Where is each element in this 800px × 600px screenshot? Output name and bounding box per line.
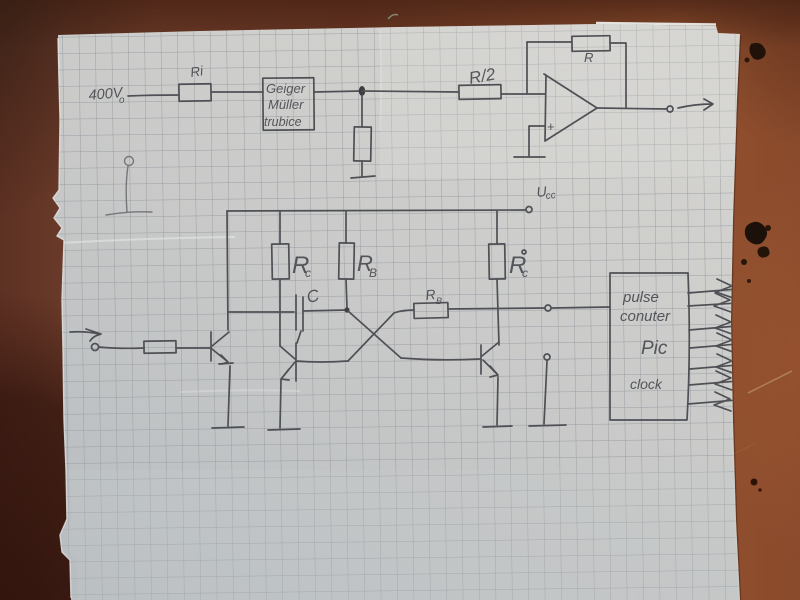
svg-text:c: c: [522, 266, 528, 280]
svg-text:conuter: conuter: [620, 308, 671, 325]
svg-text:cc: cc: [545, 190, 556, 202]
svg-text:Pic: Pic: [641, 338, 668, 359]
svg-text:Müller: Müller: [268, 97, 304, 112]
svg-text:R: R: [425, 286, 437, 303]
svg-text:clock: clock: [630, 376, 663, 392]
svg-text:trubice: trubice: [264, 115, 302, 129]
svg-text:+: +: [547, 119, 555, 134]
svg-text:o: o: [119, 95, 125, 106]
svg-text:c: c: [305, 266, 311, 280]
svg-text:pulse: pulse: [622, 289, 659, 306]
svg-text:Geiger: Geiger: [266, 81, 306, 96]
svg-text:B: B: [436, 296, 442, 306]
svg-text:B: B: [369, 266, 377, 280]
svg-text:R: R: [584, 50, 593, 65]
